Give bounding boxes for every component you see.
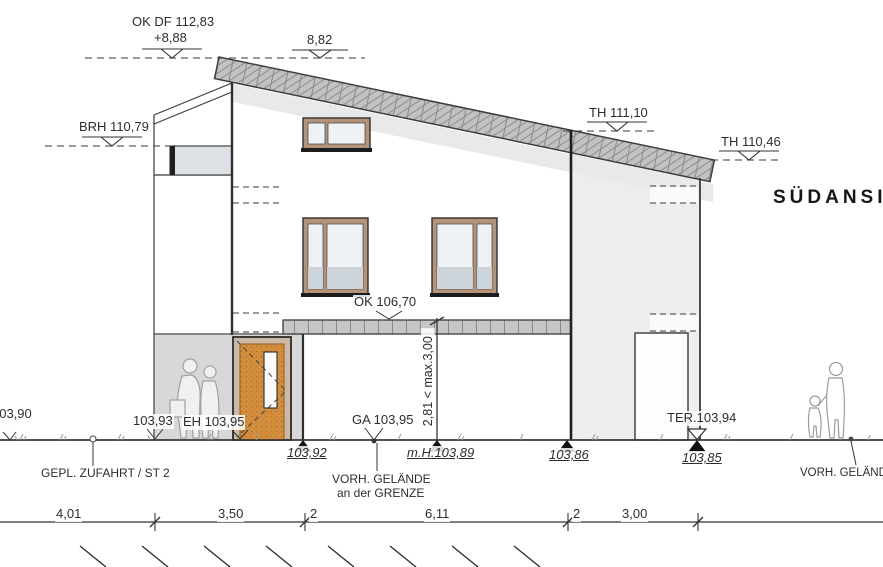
window-right [430,218,499,297]
ground-boundary: GA 103,95 [351,413,414,428]
level-882: 8,82 [306,33,333,48]
ground-left-wing: 103,93 [132,414,174,429]
elevation-sheet: OK DF 112,83 +8,88 8,82 BRH 110,79 TH 11… [0,0,883,567]
level-ok-df: OK DF 112,83 [131,15,215,30]
level-th-main: TH 111,10 [588,106,649,121]
ground-right-of-house: 103,86 [548,448,590,463]
dim-1: 4,01 [55,507,82,522]
window-left [301,218,370,297]
wing-window-mullion [170,146,175,175]
note-grade-boundary-1: VORH. GELÄNDE [331,473,432,487]
dim-5: 2 [572,507,581,522]
ground-terrace: TER.103,94 [666,411,737,426]
height-check-label: 2,81 < max.3,00 [421,328,435,434]
page-title: SÜDANSICHT [772,187,883,209]
level-th-low: TH 110,46 [720,135,782,150]
dim-3: 2 [309,507,318,522]
elevation-canvas [0,0,883,567]
wing-window-band [170,146,232,175]
ground-far-right: 103,85 [681,451,723,466]
dim-2: 3,50 [217,507,244,522]
ground-entrance: EH 103,95 [182,415,245,430]
dim-6: 3,00 [621,507,648,522]
note-grade-boundary-2: an der GRENZE [336,487,425,501]
note-grade-right: VORH. GELÄNDE [799,467,883,480]
ground-corner: 103,92 [286,446,328,461]
level-canopy: OK 106,70 [353,295,417,310]
hidden-strip-upper [650,187,698,203]
dim-4: 6,11 [424,507,450,522]
ground-far-left: 103,90 [0,407,33,422]
boundary-point [372,439,377,444]
survey-points [294,440,706,452]
people-right [809,363,845,439]
hidden-strip-lower [650,315,698,331]
note-driveway: GEPL. ZUFAHRT / ST 2 [40,467,171,481]
boundary-hatch [80,546,540,567]
level-ok-df-relative: +8,88 [153,31,188,46]
grade-point-right [849,437,854,442]
level-brh: BRH 110,79 [78,120,150,135]
ground-middle: m.H.103,89 [406,446,475,461]
attic-window [301,118,372,152]
driveway-point [90,436,96,442]
